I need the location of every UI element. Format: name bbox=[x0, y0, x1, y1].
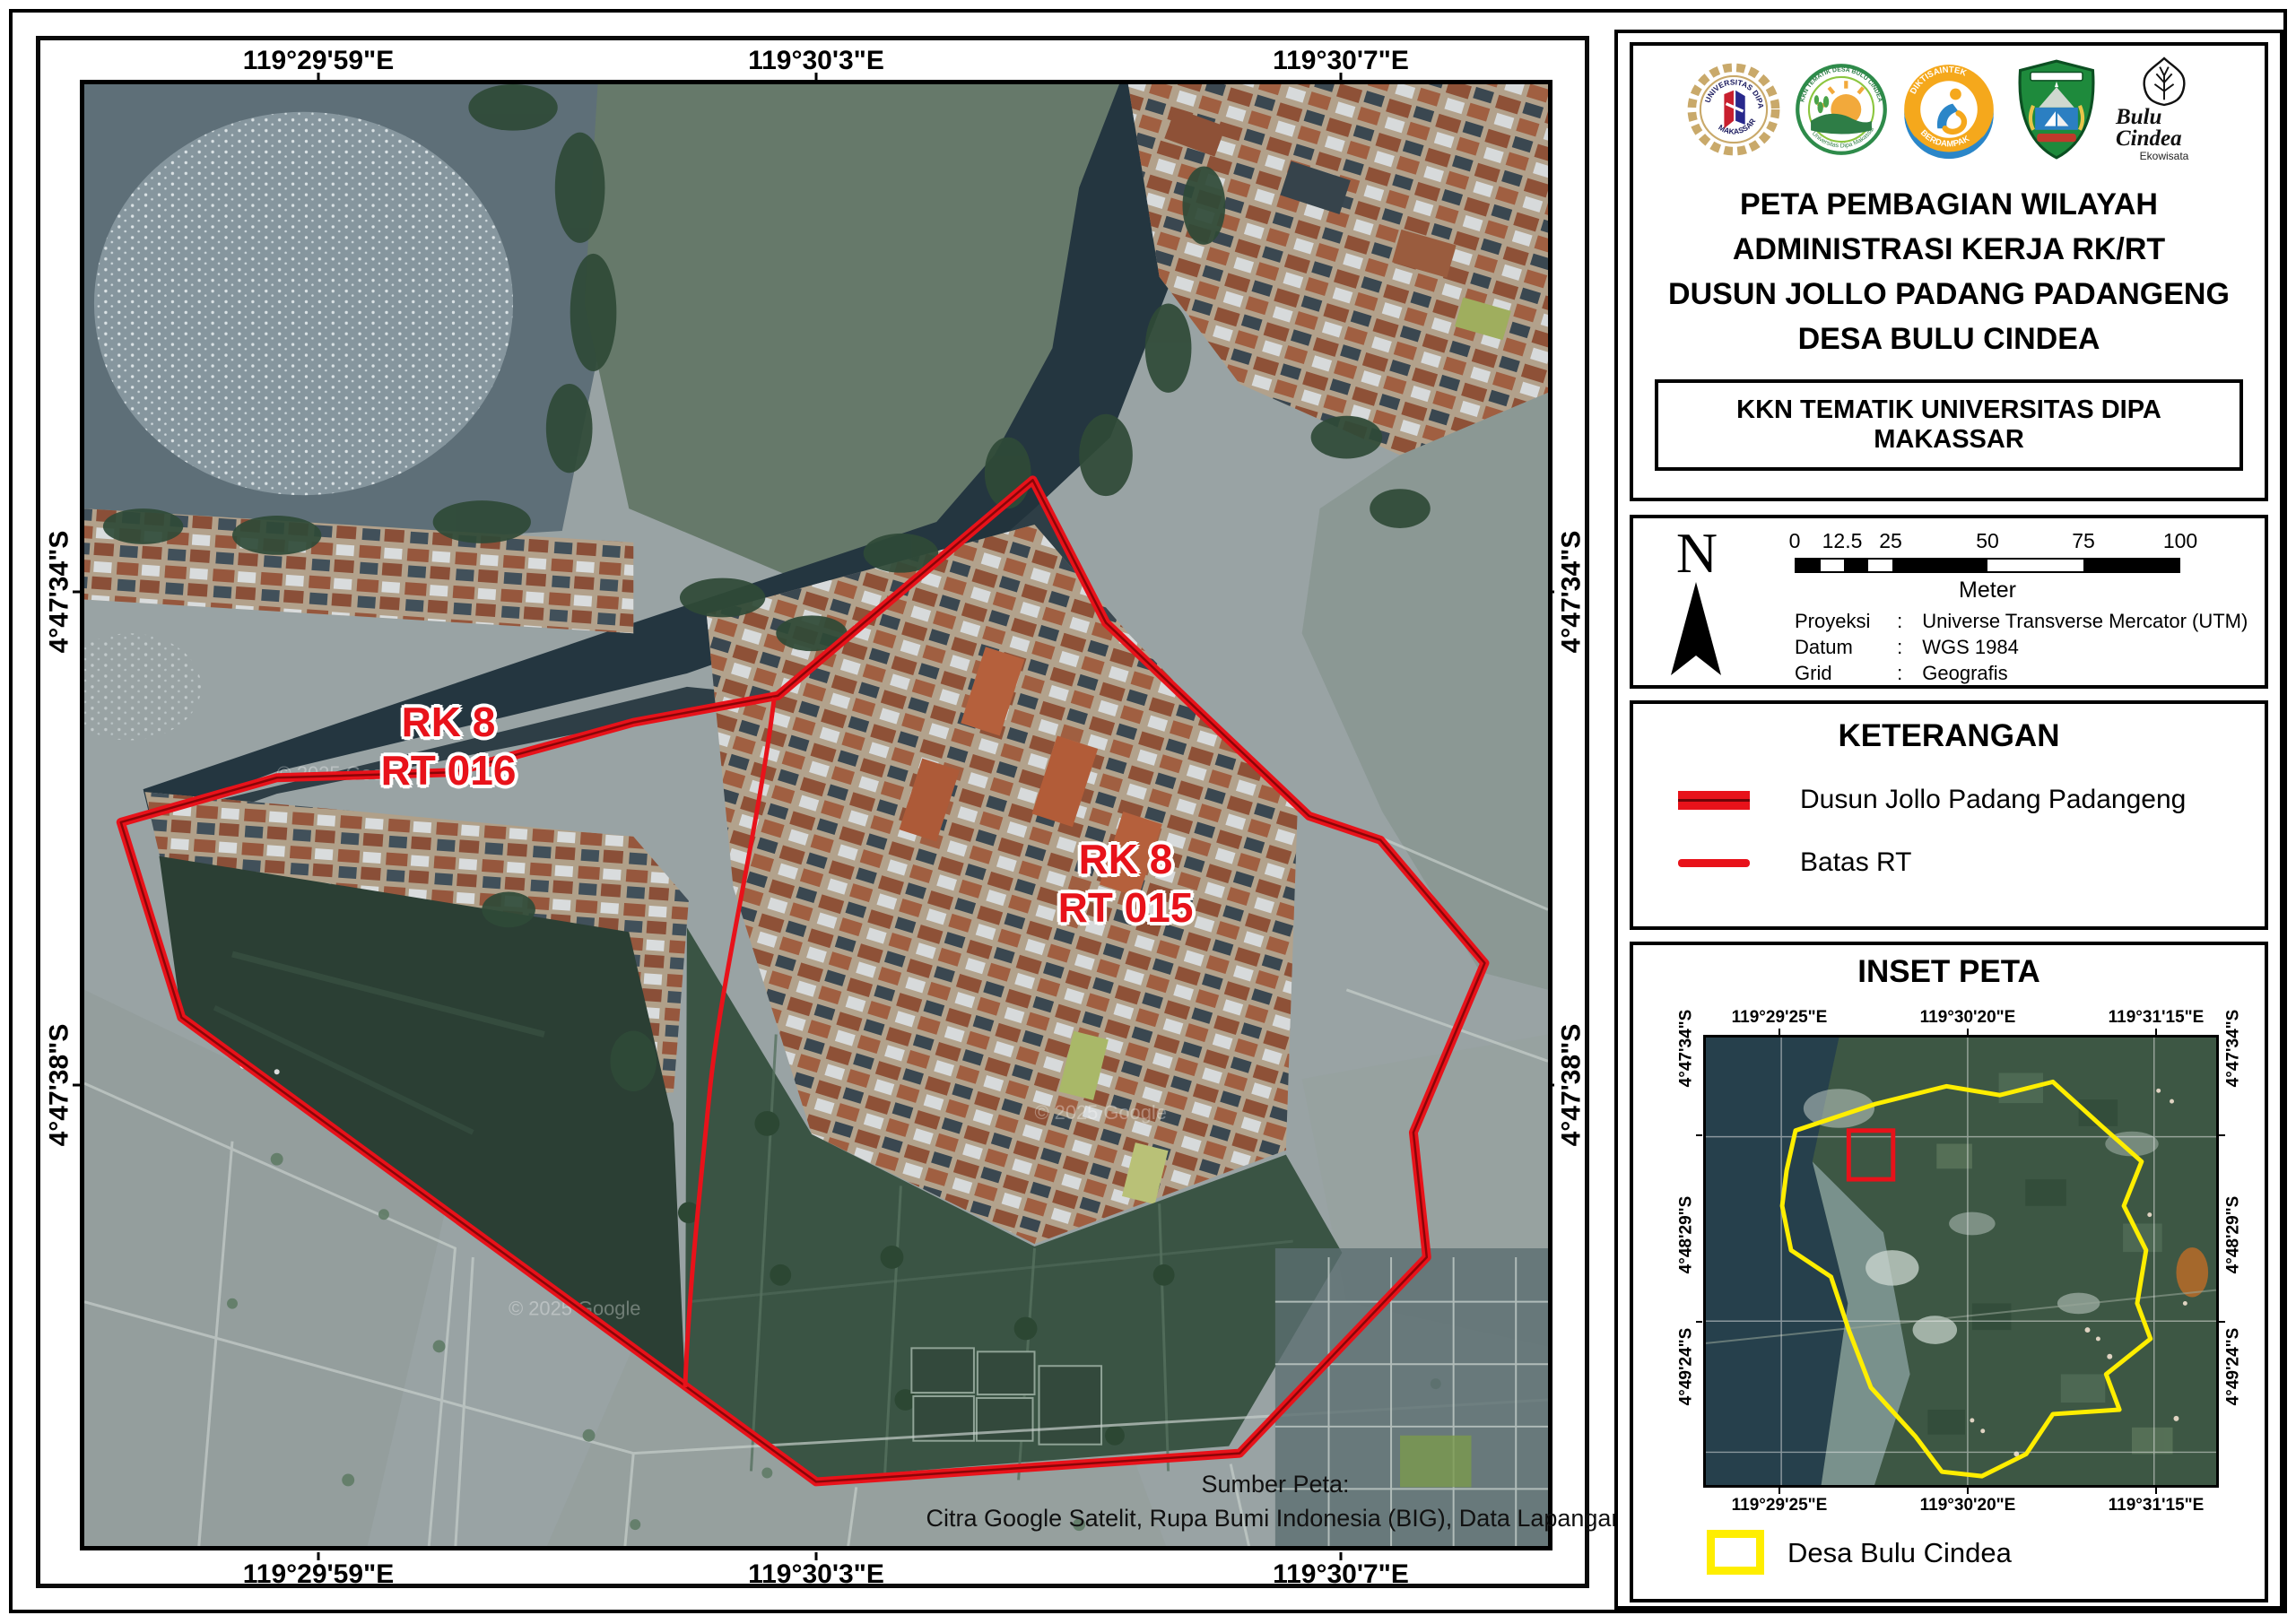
svg-text:© 2025 Google: © 2025 Google bbox=[1035, 1101, 1167, 1124]
grid-label: Grid bbox=[1795, 662, 1892, 685]
satellite-imagery: © 2025 Google © 2025 Google © 2025 Googl… bbox=[84, 84, 1548, 1546]
grid-sep: : bbox=[1897, 662, 1917, 685]
inset-lon-top-1: 119°29'25"E bbox=[1732, 1008, 1828, 1028]
bulu-cindea-script-text: Bulu Cindea bbox=[2116, 107, 2213, 150]
datum-sep: : bbox=[1897, 636, 1917, 659]
main-lon-label-top-3: 119°30'7"E bbox=[1273, 46, 1409, 76]
udm-logo-graphic: UNIVERSITAS DIPA MAKASSAR bbox=[1686, 59, 1781, 160]
desa-bulu-cindea-label: Desa Bulu Cindea bbox=[1787, 1537, 2012, 1569]
map-title: PETA PEMBAGIAN WILAYAH ADMINISTRASI KERJ… bbox=[1633, 182, 2265, 361]
scale-unit-label: Meter bbox=[1795, 578, 2180, 604]
lat-label-text: 4°47'38"S bbox=[44, 1024, 74, 1147]
kkn-logo-graphic: KKN TEMATIK DESA BULU CINDEA Universitas… bbox=[1794, 59, 1889, 160]
datum-value: WGS 1984 bbox=[1922, 636, 2019, 658]
main-map-panel: 119°29'59"E 119°30'3"E 119°30'7"E 119°29… bbox=[36, 36, 1589, 1588]
map-source-note: Sumber Peta: Citra Google Satelit, Rupa … bbox=[926, 1467, 1625, 1535]
source-title: Sumber Peta: bbox=[926, 1467, 1625, 1501]
inset-lat-text: 4°47'34"S bbox=[2223, 1010, 2243, 1088]
grid-tick bbox=[2155, 1488, 2157, 1494]
legend-title: KETERANGAN bbox=[1633, 718, 2265, 754]
projection-value: Universe Transverse Mercator (UTM) bbox=[1922, 610, 2248, 632]
main-lon-label-bottom-1: 119°29'59"E bbox=[243, 1559, 395, 1590]
batas-rt-swatch bbox=[1678, 859, 1750, 867]
lat-label-text: 4°47'34"S bbox=[1556, 531, 1587, 654]
region-label-line1: RK 8 bbox=[1058, 835, 1194, 883]
inset-lat-right-1: 4°47'34"S bbox=[2223, 990, 2243, 1107]
main-lat-label-left-1: 4°47'34"S bbox=[44, 516, 74, 668]
inset-lat-text: 4°48'29"S bbox=[1676, 1196, 1696, 1274]
legend-item-label: Batas RT bbox=[1800, 847, 1912, 878]
logo-bulu-cindea-ekowisata: Bulu Cindea Ekowisata bbox=[2116, 56, 2213, 162]
inset-lon-bottom-1: 119°29'25"E bbox=[1732, 1496, 1828, 1515]
grid-tick bbox=[1696, 1321, 1702, 1323]
grid-tick bbox=[2155, 1029, 2157, 1035]
inset-lat-right-2: 4°48'29"S bbox=[2223, 1177, 2243, 1293]
bulu-cindea-sub-text: Ekowisata bbox=[2140, 150, 2189, 162]
datum-label: Datum bbox=[1795, 636, 1892, 659]
legend-item-dusun: Dusun Jollo Padang Padangeng bbox=[1678, 786, 2186, 813]
main-lon-label-top-2: 119°30'3"E bbox=[748, 46, 884, 76]
scale-tick-75: 75 bbox=[2072, 529, 2095, 553]
logo-kabupaten-pangkep-crest bbox=[2008, 56, 2105, 162]
inset-lat-text: 4°49'24"S bbox=[2223, 1328, 2243, 1406]
inset-lat-left-2: 4°48'29"S bbox=[1676, 1177, 1696, 1293]
grid-row: Grid : Geografis bbox=[1795, 662, 2008, 685]
region-label-line2: RT 016 bbox=[381, 746, 517, 795]
main-lon-label-bottom-3: 119°30'7"E bbox=[1273, 1559, 1409, 1590]
map-title-line: DESA BULU CINDEA bbox=[1633, 317, 2265, 361]
inset-lon-bottom-3: 119°31'15"E bbox=[2109, 1496, 2205, 1515]
scale-bar bbox=[1795, 558, 2180, 573]
main-lat-label-left-2: 4°47'38"S bbox=[44, 1009, 74, 1161]
projection-sep: : bbox=[1897, 610, 1917, 633]
inset-lat-right-3: 4°49'24"S bbox=[2223, 1308, 2243, 1425]
main-lon-label-top-1: 119°29'59"E bbox=[243, 46, 395, 76]
grid-tick bbox=[2219, 1321, 2225, 1323]
grid-value: Geografis bbox=[1922, 662, 2007, 684]
projection-row: Proyeksi : Universe Transverse Mercator … bbox=[1795, 610, 2248, 633]
logo-row: UNIVERSITAS DIPA MAKASSAR bbox=[1633, 56, 2265, 162]
north-arrow-icon bbox=[1667, 581, 1725, 680]
grid-tick bbox=[1696, 1134, 1702, 1136]
scale-tick-12-5: 12.5 bbox=[1822, 529, 1863, 553]
region-label-rt015: RK 8 RT 015 bbox=[1058, 835, 1194, 932]
scale-panel: N 0 12.5 25 50 75 100 Meter Proyeksi : U… bbox=[1630, 515, 2268, 689]
satellite-map-frame: © 2025 Google © 2025 Google © 2025 Googl… bbox=[80, 80, 1552, 1550]
main-lat-label-right-2: 4°47'38"S bbox=[1556, 1009, 1587, 1161]
inset-panel: INSET PETA 119°29'25"E 119°30'20"E 119°3… bbox=[1630, 942, 2268, 1602]
grid-tick bbox=[1779, 1029, 1780, 1035]
inset-lon-bottom-2: 119°30'20"E bbox=[1920, 1496, 2016, 1515]
legend-item-label: Dusun Jollo Padang Padangeng bbox=[1800, 785, 2186, 815]
inset-lon-top-2: 119°30'20"E bbox=[1920, 1008, 2016, 1028]
datum-row: Datum : WGS 1984 bbox=[1795, 636, 2019, 659]
projection-label: Proyeksi bbox=[1795, 610, 1892, 633]
bulu-cindea-emblem bbox=[2141, 56, 2187, 107]
scale-tick-25: 25 bbox=[1879, 529, 1902, 553]
map-title-line: ADMINISTRASI KERJA RK/RT bbox=[1633, 227, 2265, 272]
inset-lon-top-3: 119°31'15"E bbox=[2109, 1008, 2205, 1028]
inset-lat-left-1: 4°47'34"S bbox=[1676, 990, 1696, 1107]
inset-lat-text: 4°49'24"S bbox=[1676, 1328, 1696, 1406]
main-lat-label-right-1: 4°47'34"S bbox=[1556, 516, 1587, 668]
grid-tick bbox=[1967, 1029, 1969, 1035]
pangkep-crest-graphic bbox=[2014, 59, 2099, 160]
legend-panel: KETERANGAN Dusun Jollo Padang Padangeng … bbox=[1630, 700, 2268, 930]
lat-label-text: 4°47'38"S bbox=[1556, 1024, 1587, 1147]
inset-lat-left-3: 4°49'24"S bbox=[1676, 1308, 1696, 1425]
logo-universitas-dipa-makassar: UNIVERSITAS DIPA MAKASSAR bbox=[1685, 56, 1782, 162]
main-lon-label-bottom-2: 119°30'3"E bbox=[748, 1559, 884, 1590]
grid-tick bbox=[2219, 1134, 2225, 1136]
logo-kkn-tematik-desa-bulu-cindea: KKN TEMATIK DESA BULU CINDEA Universitas… bbox=[1793, 56, 1890, 162]
title-panel: UNIVERSITAS DIPA MAKASSAR bbox=[1630, 42, 2268, 501]
desa-bulu-cindea-swatch bbox=[1707, 1530, 1764, 1575]
scale-tick-100: 100 bbox=[2163, 529, 2197, 553]
inset-map-frame bbox=[1703, 1035, 2219, 1488]
logo-diktisaintek-berdampak: DIKTISAINTEK BERDAMPAK bbox=[1900, 56, 1997, 162]
region-label-line1: RK 8 bbox=[381, 698, 517, 746]
scale-tick-50: 50 bbox=[1976, 529, 1999, 553]
legend-item-batas-rt: Batas RT bbox=[1678, 849, 1912, 876]
dusun-boundary-swatch bbox=[1678, 791, 1750, 810]
map-document-page: 119°29'59"E 119°30'3"E 119°30'7"E 119°29… bbox=[0, 0, 2296, 1624]
grid-tick bbox=[1779, 1488, 1780, 1494]
inset-lat-text: 4°47'34"S bbox=[1676, 1010, 1696, 1088]
inset-satellite-imagery bbox=[1706, 1038, 2216, 1485]
map-subtitle-box: KKN TEMATIK UNIVERSITAS DIPA MAKASSAR bbox=[1655, 379, 2243, 471]
dikti-logo-graphic: DIKTISAINTEK BERDAMPAK bbox=[1901, 59, 1996, 160]
scale-tick-0: 0 bbox=[1789, 529, 1801, 553]
lat-label-text: 4°47'34"S bbox=[44, 531, 74, 654]
grid-tick bbox=[1967, 1488, 1969, 1494]
north-label: N bbox=[1658, 520, 1735, 586]
map-title-line: DUSUN JOLLO PADANG PADANGENG bbox=[1633, 272, 2265, 317]
map-layout-sidebar: UNIVERSITAS DIPA MAKASSAR bbox=[1614, 30, 2283, 1610]
inset-title: INSET PETA bbox=[1633, 954, 2265, 990]
map-title-line: PETA PEMBAGIAN WILAYAH bbox=[1633, 182, 2265, 227]
region-label-line2: RT 015 bbox=[1058, 883, 1194, 932]
source-line: Citra Google Satelit, Rupa Bumi Indonesi… bbox=[926, 1501, 1625, 1535]
region-label-rt016: RK 8 RT 016 bbox=[381, 698, 517, 795]
inset-lat-text: 4°48'29"S bbox=[2223, 1196, 2243, 1274]
